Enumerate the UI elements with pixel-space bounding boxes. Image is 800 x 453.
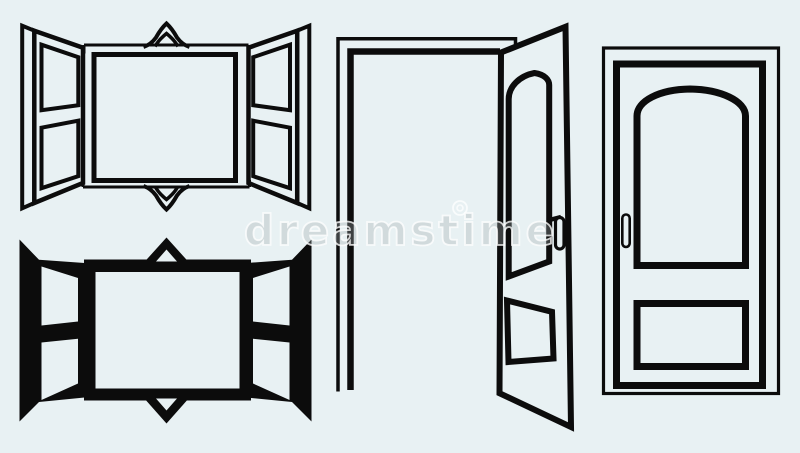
door-frame-inner [351, 52, 501, 391]
closed-door-lower-panel [637, 304, 746, 367]
silhouette-frame-opening [96, 272, 240, 389]
door-frame-outer [338, 39, 516, 392]
left-casement-upper-pane [42, 45, 79, 111]
right-casement-upper-pane [253, 45, 290, 111]
closed-door-handle-icon [622, 215, 629, 248]
left-casement-lower-pane [42, 121, 79, 189]
window-frame [94, 55, 236, 181]
closed-door-outline-icon: closed-door-outline-icon [604, 48, 779, 394]
open-window-outline-icon: open-window-outline-icon [22, 24, 309, 210]
doors-and-windows-artwork: open-window-outline-icon open-w [0, 0, 800, 453]
open-door-handle-icon [556, 218, 565, 250]
open-door-outline-icon: open-door-outline-icon [338, 27, 571, 427]
stock-illustration-sheet: open-window-outline-icon open-w [0, 0, 800, 453]
closed-door-upper-panel [637, 89, 746, 266]
open-window-silhouette-icon: open-window-silhouette-icon [20, 238, 312, 424]
right-casement-lower-pane [253, 121, 290, 189]
